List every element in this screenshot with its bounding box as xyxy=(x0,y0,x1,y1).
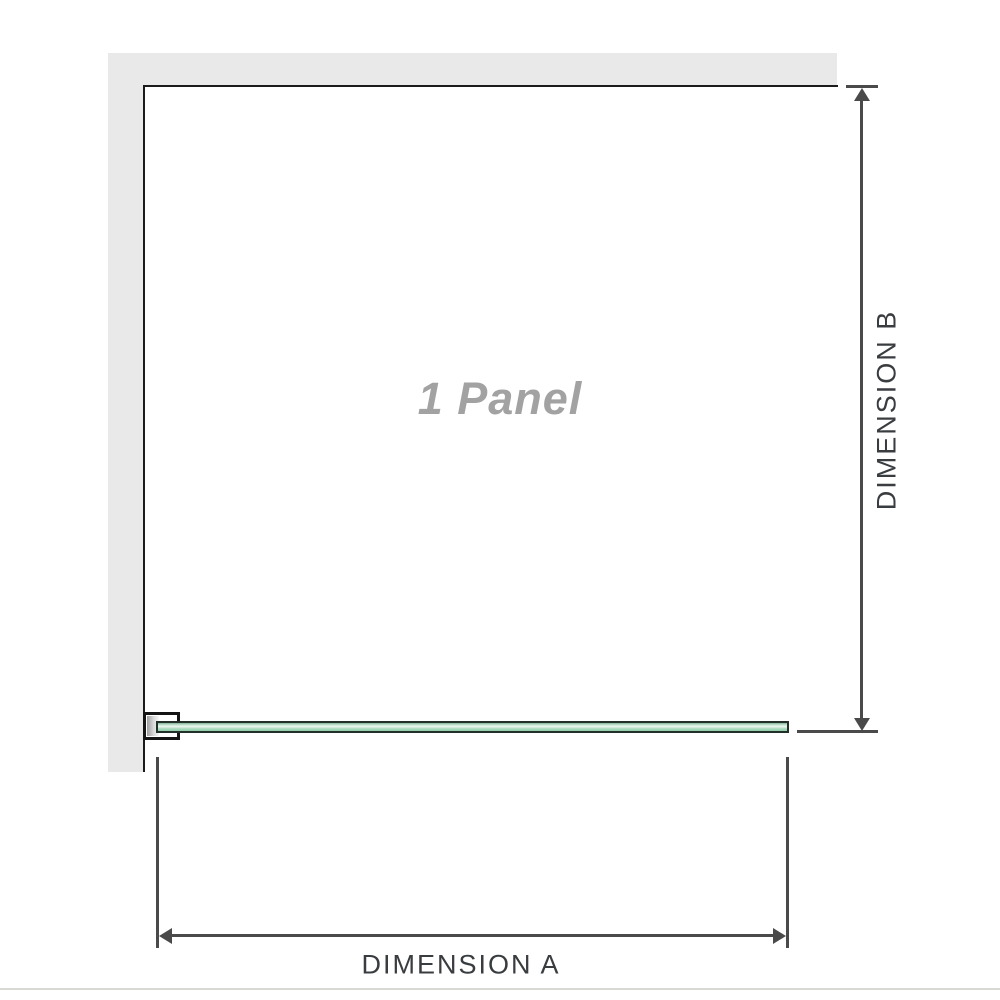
dim-b-line xyxy=(860,97,863,720)
dimension-a-label: DIMENSION A xyxy=(361,950,560,981)
panel-outline xyxy=(143,85,838,772)
dimension-b-label: DIMENSION B xyxy=(872,310,903,511)
panel-diagram: 1 Panel DIMENSION B DIMENSION A xyxy=(0,0,1000,1000)
bottom-divider xyxy=(0,988,1000,990)
glass-panel xyxy=(156,721,789,733)
panel-label: 1 Panel xyxy=(418,373,583,425)
dim-a-left-extension-line xyxy=(156,757,159,948)
arrow-up-icon xyxy=(854,88,870,101)
arrow-left-icon xyxy=(159,928,172,944)
arrow-right-icon xyxy=(773,928,786,944)
dim-a-right-extension-line xyxy=(786,757,789,948)
wall-top xyxy=(108,53,837,86)
arrow-down-icon xyxy=(854,718,870,731)
wall-left xyxy=(108,53,143,772)
dim-a-line xyxy=(169,934,775,937)
